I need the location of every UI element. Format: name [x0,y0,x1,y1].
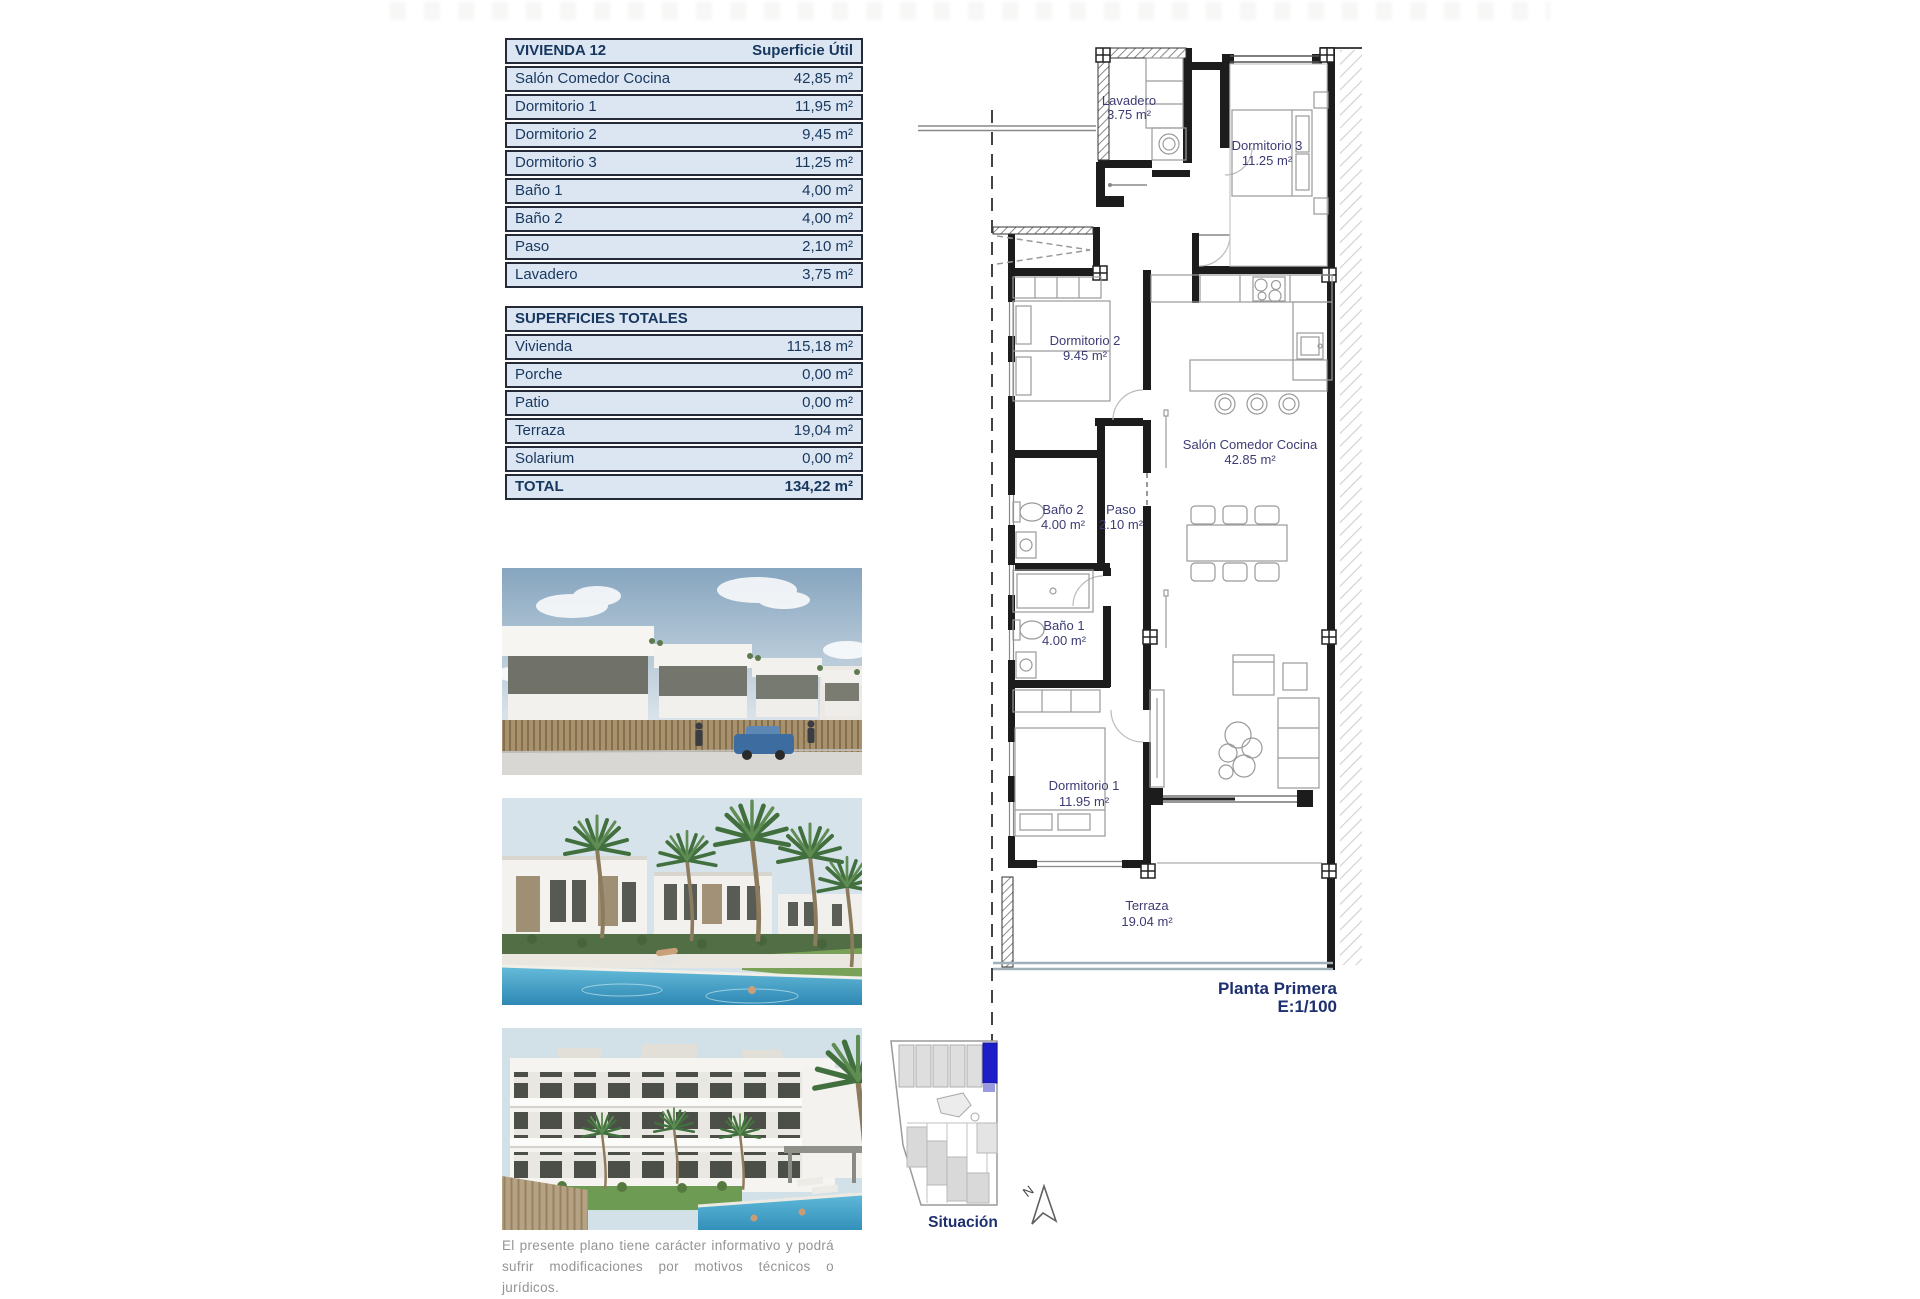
svg-text:11.25 m²: 11.25 m² [1242,153,1293,168]
cropped-header-strip [390,2,1550,20]
room-labels: Lavadero 3.75 m² Dormitorio 3 11.25 m² D… [1041,93,1318,929]
plan-sheet: { "vivienda_table": { "title": "VIVIENDA… [0,0,1920,1280]
column-markers [1093,48,1336,878]
table-row: Baño 24,00 m² [505,206,863,232]
table-row: Baño 14,00 m² [505,178,863,204]
floor-name: Planta Primera [1218,979,1338,998]
row-label: Dormitorio 3 [515,153,597,173]
north-arrow-icon: N [1020,1178,1066,1234]
room-label-dormitorio2: Dormitorio 2 [1050,333,1121,348]
row-label: Baño 1 [515,181,563,201]
row-label: Porche [515,365,563,385]
row-label: Paso [515,237,549,257]
row-value: 3,75 m² [802,265,853,285]
situation-map [885,1035,1013,1213]
table-row: Porche0,00 m² [505,362,863,388]
highlighted-parcel-terrace [983,1083,995,1092]
table-row: Patio0,00 m² [505,390,863,416]
render-photo-building [502,1028,862,1230]
row-value: 19,04 m² [794,421,853,441]
room-label-paso: Paso [1106,502,1136,517]
vivienda-table: VIVIENDA 12 Superficie Útil Salón Comedo… [505,38,863,288]
svg-text:4.00 m²: 4.00 m² [1042,633,1087,648]
table-row: Paso2,10 m² [505,234,863,260]
svg-text:42.85 m²: 42.85 m² [1224,452,1276,467]
table-row: Dormitorio 311,25 m² [505,150,863,176]
svg-text:4.00 m²: 4.00 m² [1041,517,1086,532]
room-label-terraza: Terraza [1125,898,1169,913]
access-line [918,126,1096,131]
table-row: Dormitorio 111,95 m² [505,94,863,120]
row-label: Dormitorio 1 [515,97,597,117]
svg-text:19.04 m²: 19.04 m² [1121,914,1173,929]
neighbour-hatch [1320,48,1362,965]
parcel-row-top [899,1045,982,1087]
totales-table-header: SUPERFICIES TOTALES [505,306,863,332]
room-label-bano2: Baño 2 [1042,502,1083,517]
north-letter: N [1020,1182,1037,1200]
highlighted-parcel [983,1043,997,1083]
row-value: 0,00 m² [802,365,853,385]
svg-text:2.10 m²: 2.10 m² [1099,517,1144,532]
row-value: 42,85 m² [794,69,853,89]
row-value: 9,45 m² [802,125,853,145]
row-value: 11,25 m² [795,153,853,173]
render-photo-pool [502,798,862,1005]
plan-scale: E:1/100 [1277,997,1337,1016]
row-value: 4,00 m² [802,181,853,201]
table-row: Terraza19,04 m² [505,418,863,444]
room-label-dormitorio3: Dormitorio 3 [1232,138,1303,153]
row-label: Lavadero [515,265,578,285]
floor-plan: Lavadero 3.75 m² Dormitorio 3 11.25 m² D… [900,20,1420,1080]
vivienda-header-right: Superficie Útil [752,41,853,61]
row-label: Terraza [515,421,565,441]
total-row: TOTAL134,22 m² [505,474,863,500]
table-row: Solarium0,00 m² [505,446,863,472]
row-value: 115,18 m² [787,337,853,357]
situation-label: Situación [903,1214,1023,1232]
table-row: Dormitorio 29,45 m² [505,122,863,148]
total-value: 134,22 m² [785,477,853,497]
svg-text:11.95 m²: 11.95 m² [1059,794,1110,809]
table-row: Lavadero3,75 m² [505,262,863,288]
svg-text:9.45 m²: 9.45 m² [1063,348,1108,363]
svg-text:3.75 m²: 3.75 m² [1107,107,1152,122]
row-value: 2,10 m² [802,237,853,257]
room-label-bano1: Baño 1 [1043,618,1084,633]
room-label-dormitorio1: Dormitorio 1 [1049,778,1120,793]
row-label: Salón Comedor Cocina [515,69,670,89]
room-label-salon: Salón Comedor Cocina [1183,437,1318,452]
table-row: Salón Comedor Cocina42,85 m² [505,66,863,92]
row-value: 0,00 m² [802,449,853,469]
disclaimer-text: El presente plano tiene carácter informa… [502,1236,834,1299]
plan-caption: Planta Primera E:1/100 [1218,979,1338,1016]
row-label: Patio [515,393,549,413]
render-photo-street [502,568,862,775]
room-label-lavadero: Lavadero [1102,93,1156,108]
totales-table: SUPERFICIES TOTALES Vivienda115,18 m² Po… [505,306,863,500]
row-value: 4,00 m² [802,209,853,229]
totales-title: SUPERFICIES TOTALES [515,309,688,329]
row-label: Dormitorio 2 [515,125,597,145]
row-value: 0,00 m² [802,393,853,413]
vivienda-title: VIVIENDA 12 [515,41,606,61]
row-label: Baño 2 [515,209,563,229]
row-value: 11,95 m² [795,97,853,117]
row-label: Solarium [515,449,574,469]
terrace-balustrade [993,963,1333,969]
vivienda-table-header: VIVIENDA 12 Superficie Útil [505,38,863,64]
table-row: Vivienda115,18 m² [505,334,863,360]
total-label: TOTAL [515,477,564,497]
row-label: Vivienda [515,337,572,357]
